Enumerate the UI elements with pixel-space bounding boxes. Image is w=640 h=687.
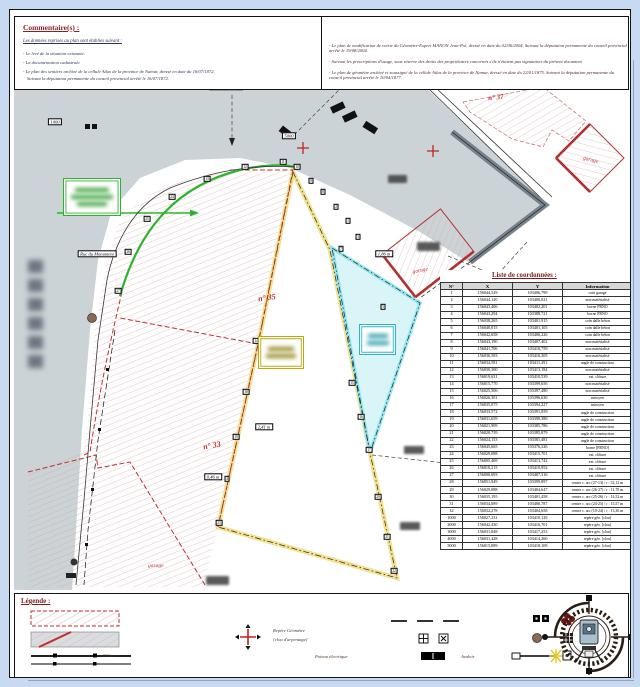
table-row: 24156029,088103415,701ext. clôture xyxy=(441,451,633,458)
table-cell: 156005,469 xyxy=(463,458,513,465)
survey-point-marker: 2 xyxy=(334,204,339,210)
table-row: 21156020,739103385,879angle de construct… xyxy=(441,430,633,437)
table-cell: 103410,129 xyxy=(513,514,563,521)
table-cell: 2 xyxy=(441,297,463,304)
table-cell: 11 xyxy=(441,360,463,367)
table-cell: repère géo. [clou] xyxy=(563,543,633,550)
comments-title: Commentaire(s) : xyxy=(23,23,79,32)
table-cell: ext. clôture xyxy=(563,465,633,472)
table-cell: coin dalle béton xyxy=(563,325,633,332)
map-label-chip: 2,41 m xyxy=(255,423,273,430)
coordinate-table: N° X Y Information 1156044,529103406,799… xyxy=(440,282,633,550)
table-row: 30156035,195103401,458centre c. arc (25-… xyxy=(441,493,633,500)
table-cell: 3 xyxy=(441,304,463,311)
col-header-y: Y xyxy=(513,283,563,290)
table-cell: non matérialisé xyxy=(563,388,633,395)
compass-rose xyxy=(539,594,639,676)
table-cell: 156021,909 xyxy=(463,423,513,430)
table-row: 15156025,506103397,480non matérialisé xyxy=(441,388,633,395)
total-station-icon xyxy=(576,620,602,664)
map-label-chip: Rue du Monument xyxy=(78,250,117,257)
table-cell: 103397,480 xyxy=(513,388,563,395)
table-cell: repère géo. [clou] xyxy=(563,514,633,521)
legend-label-poteau: Poteau électrique xyxy=(315,654,348,659)
comment-item: - Le plan de géomètre archivé et soussig… xyxy=(329,70,628,80)
survey-point-marker: 3 xyxy=(356,234,361,240)
table-row: 6156040,015103401,105coin dalle béton xyxy=(441,325,633,332)
table-cell: 25 xyxy=(441,458,463,465)
table-cell: 156026,301 xyxy=(463,395,513,402)
survey-point-marker: 7 xyxy=(339,246,344,252)
table-row: 10156036,583103416,305non matérialisé xyxy=(441,353,633,360)
survey-point-marker: 4 xyxy=(225,476,230,482)
table-cell: 103406,226 xyxy=(513,332,563,339)
table-cell: 103415,701 xyxy=(513,451,563,458)
table-cell: 103410,539 xyxy=(513,374,563,381)
table-cell: 103399,656 xyxy=(513,381,563,388)
survey-point-marker: 15 xyxy=(349,380,356,386)
survey-point-marker: 18 xyxy=(243,389,250,395)
legend-label-avaloir: Avaloir xyxy=(461,654,475,659)
table-cell: 103404,647 xyxy=(513,486,563,493)
parcel37-label: n° 37 xyxy=(488,93,505,103)
table-cell: borne [FRNO] xyxy=(563,444,633,451)
table-cell: centre c. arc (10-24) / r : 13,36 m xyxy=(563,507,633,514)
table-cell: 10 xyxy=(441,353,463,360)
survey-point-marker: 5 xyxy=(381,304,386,310)
survey-point-marker: 17 xyxy=(366,447,373,453)
table-cell: 7 xyxy=(441,332,463,339)
redacted-label xyxy=(400,522,420,530)
survey-point-marker: 23 xyxy=(216,520,223,526)
garage-bottomleft-label: garage xyxy=(148,563,164,569)
survey-point-marker: 19 xyxy=(233,434,240,440)
table-row: 7156042,658103406,226coin dalle béton xyxy=(441,332,633,339)
table-cell: 27 xyxy=(441,472,463,479)
table-cell: 103406,021 xyxy=(513,297,563,304)
table-cell: 103381,481 xyxy=(513,437,563,444)
survey-point-marker: 21 xyxy=(384,534,391,540)
table-cell: 156036,583 xyxy=(463,353,513,360)
table-cell: 156042,430 xyxy=(463,521,513,528)
table-row: 2000156042,430103416,701repère géo. [clo… xyxy=(441,521,633,528)
table-row: 16156026,301103396,630mitoyen xyxy=(441,395,633,402)
table-cell: ext. clôture xyxy=(563,472,633,479)
table-cell: 103418,109 xyxy=(513,543,563,550)
table-row: 18156033,572103391,059angle de construct… xyxy=(441,409,633,416)
table-row: 5000156015,089103418,109repère géo. [clo… xyxy=(441,543,633,550)
table-cell: non matérialisé xyxy=(563,381,633,388)
table-cell: 103399,897 xyxy=(513,479,563,486)
table-cell: 103390,389 xyxy=(513,416,563,423)
table-cell: 5 xyxy=(441,318,463,325)
table-cell: centre c. arc (24-25) / r : 15,57 m xyxy=(563,500,633,507)
table-row: 4000156031,428103414,260repère géo. [clo… xyxy=(441,536,633,543)
survey-point-marker: 12 xyxy=(242,164,249,170)
survey-point-marker: 26 xyxy=(125,249,132,255)
table-row: 25156005,469103413,742ext. clôture xyxy=(441,458,633,465)
table-cell: 103401,105 xyxy=(513,325,563,332)
table-row: 1156044,529103406,799coin garage xyxy=(441,290,633,297)
table-cell: 3000 xyxy=(441,529,463,536)
table-cell: 156025,506 xyxy=(463,388,513,395)
table-cell: 103410,759 xyxy=(513,346,563,353)
lot-ceder-annotation-blurred xyxy=(258,336,304,369)
legend-label-repere-2: [clou d'arpentage] xyxy=(273,637,308,642)
table-cell: 21 xyxy=(441,430,463,437)
redacted-label xyxy=(388,175,407,183)
table-cell: centre c. arc (26-27) / r : 11,70 m xyxy=(563,486,633,493)
parcel35-label: n° 35 xyxy=(258,292,277,303)
table-cell: 24 xyxy=(441,451,463,458)
table-cell: 156040,015 xyxy=(463,325,513,332)
table-cell: 156043,294 xyxy=(463,311,513,318)
table-cell: 156038,265 xyxy=(463,318,513,325)
coordinate-table-title: Liste de coordonnées : xyxy=(492,272,634,279)
table-cell: 103394,227 xyxy=(513,402,563,409)
table-cell: angle de construction xyxy=(563,360,633,367)
survey-point-marker: 24 xyxy=(169,194,176,200)
table-cell: repère géo. [clou] xyxy=(563,521,633,528)
table-cell: 156043,190 xyxy=(463,339,513,346)
table-cell: 103385,879 xyxy=(513,430,563,437)
table-cell: 156024,153 xyxy=(463,437,513,444)
table-cell: 29 xyxy=(441,486,463,493)
table-cell: 156015,089 xyxy=(463,543,513,550)
table-row: 23156045,665103376,326borne [FRNO] xyxy=(441,444,633,451)
table-cell: 156034,581 xyxy=(463,360,513,367)
avaloir-symbol xyxy=(421,652,445,660)
swatch-parcel-existing xyxy=(31,611,119,626)
table-cell: 103402,201 xyxy=(513,304,563,311)
survey-point-marker: 20 xyxy=(375,494,382,500)
table-cell: ext. clôture xyxy=(563,374,633,381)
table-row: 14156015,770103399,656non matérialisé xyxy=(441,381,633,388)
table-cell: coin dalle béton xyxy=(563,332,633,339)
border-accent-line xyxy=(633,60,634,678)
table-cell: non matérialisé xyxy=(563,339,633,346)
survey-point-marker: 27 xyxy=(115,288,122,294)
table-cell: 103413,184 xyxy=(513,367,563,374)
table-cell: 156029,088 xyxy=(463,486,513,493)
table-cell: 156041,706 xyxy=(463,346,513,353)
table-cell: 156045,665 xyxy=(463,444,513,451)
table-row: 3156043,406103402,201borne FRNO xyxy=(441,304,633,311)
table-cell: 103388,721 xyxy=(513,311,563,318)
table-cell: repère géo. [clou] xyxy=(563,529,633,536)
table-cell: 156033,572 xyxy=(463,409,513,416)
survey-point-marker: 16 xyxy=(358,414,365,420)
table-cell: 156031,428 xyxy=(463,536,513,543)
table-cell: non matérialisé xyxy=(563,346,633,353)
table-cell: 156000,693 xyxy=(463,472,513,479)
table-cell: 103416,701 xyxy=(513,521,563,528)
table-cell: 26 xyxy=(441,465,463,472)
table-cell: centre c. arc (25-26) / r : 14,52 m xyxy=(563,493,633,500)
table-cell: 156030,300 xyxy=(463,367,513,374)
table-row: 17156035,075103394,227mitoyen xyxy=(441,402,633,409)
comments-intro: Les données reprises au plan sont établi… xyxy=(23,39,122,44)
table-row: 3000156031,848103417,253repère géo. [clo… xyxy=(441,529,633,536)
table-cell: 103401,458 xyxy=(513,493,563,500)
table-cell: 156032,278 xyxy=(463,507,513,514)
table-row: 8156043,190103407,402non matérialisé xyxy=(441,339,633,346)
table-cell: 9 xyxy=(441,346,463,353)
table-cell: 103410,952 xyxy=(513,465,563,472)
table-row: 31156034,089103400,787centre c. arc (24-… xyxy=(441,500,633,507)
table-cell: 156051,949 xyxy=(463,479,513,486)
table-cell: 103416,305 xyxy=(513,353,563,360)
table-row: 5156038,265103401,915coin dalle béton xyxy=(441,318,633,325)
table-row: 12156030,300103413,184non matérialisé xyxy=(441,367,633,374)
map-label-chip: 5000 xyxy=(282,132,296,139)
map-label-chip: 1,86 m xyxy=(375,250,393,257)
table-header-row: N° X Y Information xyxy=(441,283,633,290)
table-cell: 156015,770 xyxy=(463,381,513,388)
table-cell: coin garage xyxy=(563,290,633,297)
table-cell: 103385,786 xyxy=(513,423,563,430)
comment-item: - Le plan de modification de voirie du G… xyxy=(329,43,628,53)
survey-point-marker: 22 xyxy=(391,568,398,574)
table-row: 1000156027,231103410,129repère géo. [clo… xyxy=(441,514,633,521)
table-cell: mitoyen xyxy=(563,395,633,402)
table-row: 26156010,215103410,952ext. clôture xyxy=(441,465,633,472)
lot-a-annotation-blurred xyxy=(63,178,121,216)
table-row: 32156032,278103404,658centre c. arc (10-… xyxy=(441,507,633,514)
survey-point-marker: 1 xyxy=(346,218,351,224)
table-cell: 103406,799 xyxy=(513,290,563,297)
survey-point-marker: 25 xyxy=(144,216,151,222)
table-cell: 103407,402 xyxy=(513,339,563,346)
table-cell: 103396,630 xyxy=(513,395,563,402)
table-cell: 103401,915 xyxy=(513,318,563,325)
panel-divider xyxy=(321,17,322,89)
table-cell: 17 xyxy=(441,402,463,409)
table-cell: non matérialisé xyxy=(563,297,633,304)
survey-point-marker: 11 xyxy=(280,159,287,165)
table-cell: 19 xyxy=(441,416,463,423)
table-cell: 156044,529 xyxy=(463,290,513,297)
survey-plan-sheet: n° 35 n° 33 n° 37 garage garage garage 2… xyxy=(0,0,640,687)
table-cell: angle de construction xyxy=(563,416,633,423)
table-cell: non matérialisé xyxy=(563,353,633,360)
table-cell: 156019,631 xyxy=(463,374,513,381)
table-cell: 156034,089 xyxy=(463,500,513,507)
survey-point-marker: 13 xyxy=(204,176,211,182)
table-cell: 156044,120 xyxy=(463,297,513,304)
comment-item: - Suivant les prescriptions d'usage, sou… xyxy=(329,59,583,64)
table-cell: 18 xyxy=(441,409,463,416)
table-cell: 5000 xyxy=(441,543,463,550)
table-cell: ext. clôture xyxy=(563,458,633,465)
table-cell: 20 xyxy=(441,423,463,430)
table-cell: 8 xyxy=(441,339,463,346)
table-row: 22156024,153103381,481angle de construct… xyxy=(441,437,633,444)
table-cell: angle de construction xyxy=(563,437,633,444)
table-row: 4156043,294103388,721borne FRNO xyxy=(441,311,633,318)
table-cell: 22 xyxy=(441,437,463,444)
redacted-label xyxy=(206,576,229,585)
table-cell: 103411,291 xyxy=(513,360,563,367)
table-cell: 156042,658 xyxy=(463,332,513,339)
table-cell: 14 xyxy=(441,381,463,388)
coordinate-panel: Liste de coordonnées : N° X Y Informatio… xyxy=(440,270,634,588)
table-row: 20156021,909103385,786angle de construct… xyxy=(441,423,633,430)
table-cell: 4000 xyxy=(441,536,463,543)
table-cell: 103413,742 xyxy=(513,458,563,465)
table-cell: 6 xyxy=(441,325,463,332)
col-header-x: X xyxy=(463,283,513,290)
comments-panel: Commentaire(s) : Les données reprises au… xyxy=(14,16,629,90)
coordinate-table-body: 1156044,529103406,799coin garage2156044,… xyxy=(441,290,633,550)
table-cell: 103391,059 xyxy=(513,409,563,416)
table-row: 2156044,120103406,021non matérialisé xyxy=(441,297,633,304)
table-cell: 30 xyxy=(441,493,463,500)
table-cell: non matérialisé xyxy=(563,367,633,374)
table-cell: 28 xyxy=(441,479,463,486)
map-label-chip: 0,46 m xyxy=(204,473,222,480)
table-cell: 156027,231 xyxy=(463,514,513,521)
table-cell: borne FRNO xyxy=(563,304,633,311)
table-cell: 4 xyxy=(441,311,463,318)
street-name-blurred xyxy=(28,260,43,372)
table-cell: 103400,787 xyxy=(513,500,563,507)
table-cell: 103376,326 xyxy=(513,444,563,451)
redacted-label xyxy=(404,446,424,454)
table-cell: 31 xyxy=(441,500,463,507)
table-cell: 13 xyxy=(441,374,463,381)
table-cell: 32 xyxy=(441,507,463,514)
table-row: 29156029,088103404,647centre c. arc (26-… xyxy=(441,486,633,493)
table-cell: 156029,088 xyxy=(463,451,513,458)
table-cell: 1 xyxy=(441,290,463,297)
table-cell: 156031,659 xyxy=(463,416,513,423)
table-cell: borne FRNO xyxy=(563,311,633,318)
comment-item: - Le levé de la situation existante. xyxy=(23,51,85,56)
table-row: 19156031,659103390,389angle de construct… xyxy=(441,416,633,423)
table-row: 11156034,581103411,291angle de construct… xyxy=(441,360,633,367)
table-row: 28156051,949103399,897centre c. arc (27-… xyxy=(441,479,633,486)
table-cell: 156020,739 xyxy=(463,430,513,437)
comment-item: - Le plan des sentiers archivé de la cel… xyxy=(23,69,215,74)
table-row: 27156000,693103407,316ext. clôture xyxy=(441,472,633,479)
table-cell: 103414,260 xyxy=(513,536,563,543)
legend-panel: Légende : xyxy=(14,593,629,679)
table-cell: coin dalle béton xyxy=(563,318,633,325)
map-label-chip: 1000 xyxy=(48,118,62,125)
survey-point-marker: 10 xyxy=(294,164,301,170)
col-header-n: N° xyxy=(441,283,463,290)
table-cell: 16 xyxy=(441,395,463,402)
table-cell: angle de construction xyxy=(563,423,633,430)
table-cell: 156035,195 xyxy=(463,493,513,500)
table-cell: 23 xyxy=(441,444,463,451)
border-accent-line xyxy=(28,680,634,681)
table-cell: 156035,075 xyxy=(463,402,513,409)
table-cell: 103407,316 xyxy=(513,472,563,479)
table-cell: repère géo. [clou] xyxy=(563,536,633,543)
table-cell: angle de construction xyxy=(563,430,633,437)
table-cell: 103404,658 xyxy=(513,507,563,514)
manhole-symbols xyxy=(419,634,448,643)
table-cell: 156031,848 xyxy=(463,529,513,536)
table-cell: 1000 xyxy=(441,514,463,521)
survey-point-marker: 9 xyxy=(309,178,314,184)
table-row: 9156041,706103410,759non matérialisé xyxy=(441,346,633,353)
lot-cyan-annotation-blurred xyxy=(359,324,396,355)
redacted-label xyxy=(417,242,440,251)
legend-symbols xyxy=(15,594,626,676)
table-row: 13156019,631103410,539ext. clôture xyxy=(441,374,633,381)
table-cell: 156010,215 xyxy=(463,465,513,472)
table-cell: ext. clôture xyxy=(563,451,633,458)
legend-label-repere-1: Repère Géomètre xyxy=(273,628,305,633)
table-cell: mitoyen xyxy=(563,402,633,409)
table-cell: centre c. arc (27-13) / r : 52,12 m xyxy=(563,479,633,486)
table-cell: 15 xyxy=(441,388,463,395)
comment-item: - La documentation cadastrale. xyxy=(23,60,81,65)
comment-item: Suivant la députation permanente du cons… xyxy=(27,76,169,81)
table-cell: 156043,406 xyxy=(463,304,513,311)
col-header-info: Information xyxy=(563,283,633,290)
geo-reference-symbol xyxy=(235,624,261,650)
table-cell: 12 xyxy=(441,367,463,374)
table-cell: 2000 xyxy=(441,521,463,528)
survey-point-marker: 8 xyxy=(321,189,326,195)
legend-label-cloture: Clôture xyxy=(103,653,117,658)
table-cell: 103417,253 xyxy=(513,529,563,536)
table-cell: angle de construction xyxy=(563,409,633,416)
